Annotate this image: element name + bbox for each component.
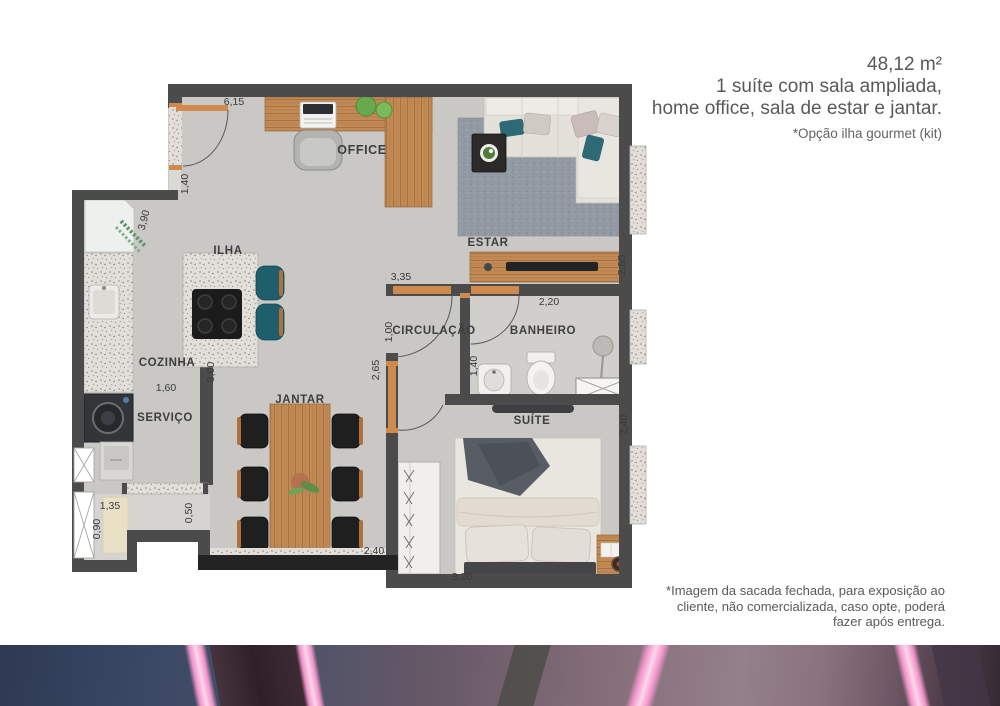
dim-1-60: 1,60 bbox=[156, 382, 177, 394]
label-suite: SUÍTE bbox=[514, 414, 551, 427]
gourmet-option-note: *Opção ilha gourmet (kit) bbox=[652, 124, 942, 144]
label-jantar: JANTAR bbox=[275, 394, 324, 406]
dim-3-35: 3,35 bbox=[391, 271, 412, 283]
label-banheiro: BANHEIRO bbox=[510, 325, 576, 337]
footnote-line1: *Imagem da sacada fechada, para exposiçã… bbox=[666, 583, 945, 599]
unit-description-line1: 1 suíte com sala ampliada, bbox=[652, 76, 942, 98]
label-cozinha: COZINHA bbox=[139, 357, 196, 369]
laundry-tank bbox=[100, 442, 133, 480]
washing-machine bbox=[84, 394, 133, 442]
sideboard bbox=[470, 252, 630, 282]
dim-3-20: 3,20 bbox=[452, 571, 473, 583]
office-chair bbox=[294, 130, 342, 170]
wardrobe bbox=[398, 462, 440, 574]
label-circulacao: CIRCULAÇÃO bbox=[392, 324, 475, 337]
suite-curtain-bar bbox=[492, 404, 574, 413]
label-office: OFFICE bbox=[337, 143, 386, 157]
service-half-wall bbox=[122, 483, 208, 494]
page: OFFICE ESTAR ILHA COZINHA SERVIÇO JANTAR… bbox=[0, 0, 1000, 706]
footnote-line2: cliente, não comercializada, caso opte, … bbox=[666, 599, 945, 615]
band-pink-stripe-3 bbox=[622, 645, 674, 706]
band-dark-right bbox=[929, 645, 993, 706]
unit-summary: 48,12 m² 1 suíte com sala ampliada, home… bbox=[652, 54, 942, 144]
dining-table bbox=[270, 404, 330, 560]
dim-6-15: 6,15 bbox=[224, 96, 245, 108]
label-servico: SERVIÇO bbox=[137, 412, 193, 424]
dim-0-90: 0,90 bbox=[91, 519, 103, 540]
toilet bbox=[527, 352, 555, 395]
decorative-photo-band bbox=[0, 645, 1000, 706]
windows bbox=[630, 146, 646, 524]
balcony-footnote: *Imagem da sacada fechada, para exposiçã… bbox=[666, 583, 945, 630]
dim-3-00: 3,00 bbox=[205, 362, 217, 383]
dim-2-40-suite: 2,40 bbox=[618, 415, 630, 436]
dim-2-40-jantar: 2,40 bbox=[364, 545, 385, 557]
band-pink-stripe-4 bbox=[890, 645, 934, 706]
bed bbox=[455, 438, 601, 578]
unit-area: 48,12 m² bbox=[652, 54, 942, 76]
dim-1-35: 1,35 bbox=[100, 500, 121, 512]
dim-2-55: 2,55 bbox=[616, 255, 628, 276]
unit-description-line2: home office, sala de estar e jantar. bbox=[652, 98, 942, 120]
label-ilha: ILHA bbox=[213, 245, 242, 257]
dim-1-40-entry: 1,40 bbox=[179, 174, 191, 195]
dim-2-20: 2,20 bbox=[539, 296, 560, 308]
dim-0-50: 0,50 bbox=[183, 503, 195, 524]
label-estar: ESTAR bbox=[467, 237, 508, 249]
closed-balcony-wall bbox=[198, 555, 398, 570]
coffee-table bbox=[472, 134, 506, 172]
dim-2-65: 2,65 bbox=[370, 360, 382, 381]
service-vents bbox=[74, 448, 94, 558]
bathroom-sink bbox=[478, 364, 511, 395]
kitchen-counter bbox=[84, 253, 133, 392]
dim-1-00: 1,00 bbox=[383, 322, 395, 343]
footnote-line3: fazer após entrega. bbox=[666, 614, 945, 630]
band-dark-diagonal bbox=[494, 645, 554, 706]
dim-1-40-bath: 1,40 bbox=[468, 356, 480, 377]
